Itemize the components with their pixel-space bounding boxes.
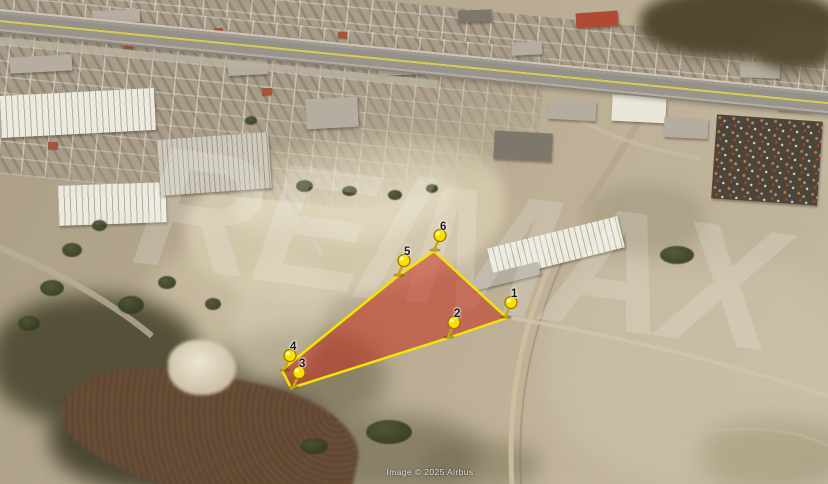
parcel-marker-5[interactable]: 5 — [391, 252, 417, 278]
parcel-marker-1[interactable]: 1 — [498, 294, 524, 320]
marker-label: 2 — [454, 308, 460, 320]
aerial-map-view: RE/MAX 1 2 3 4 5 6 Image © 2025 Airbus — [0, 0, 828, 484]
marker-label: 1 — [511, 288, 517, 300]
parcel-marker-2[interactable]: 2 — [441, 314, 467, 340]
parcel-overlay[interactable] — [0, 0, 828, 484]
parcel-marker-6[interactable]: 6 — [427, 227, 453, 253]
marker-label: 4 — [290, 341, 296, 353]
marker-label: 5 — [404, 246, 410, 258]
imagery-attribution: Image © 2025 Airbus — [345, 467, 515, 477]
parcel-marker-4[interactable]: 4 — [277, 347, 303, 373]
marker-label: 6 — [440, 221, 446, 233]
